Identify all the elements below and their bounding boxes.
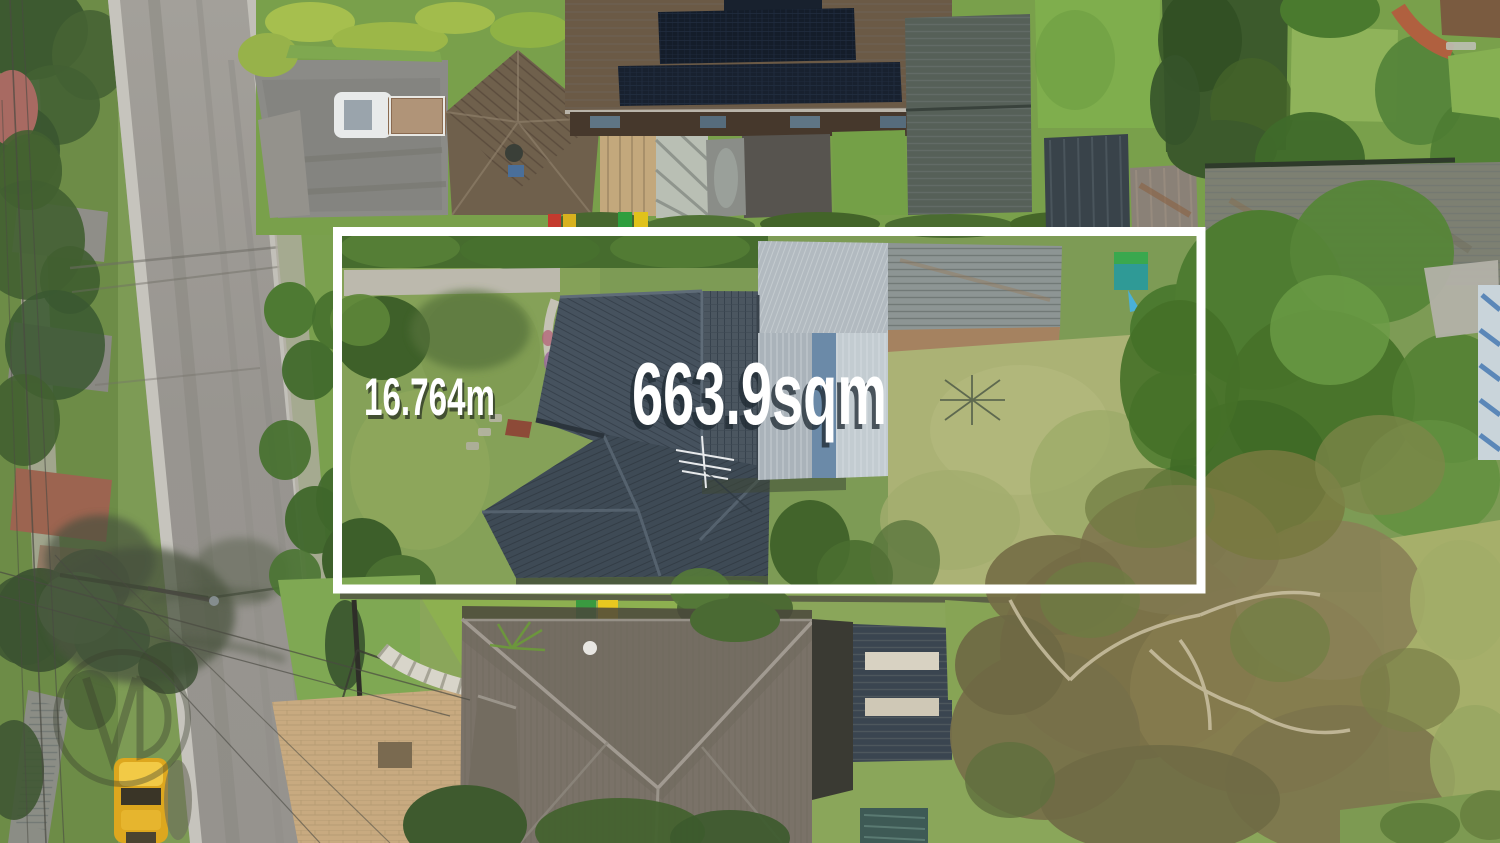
- svg-text:16.764m: 16.764m: [364, 368, 495, 427]
- svg-text:663.9sqm: 663.9sqm: [632, 344, 887, 443]
